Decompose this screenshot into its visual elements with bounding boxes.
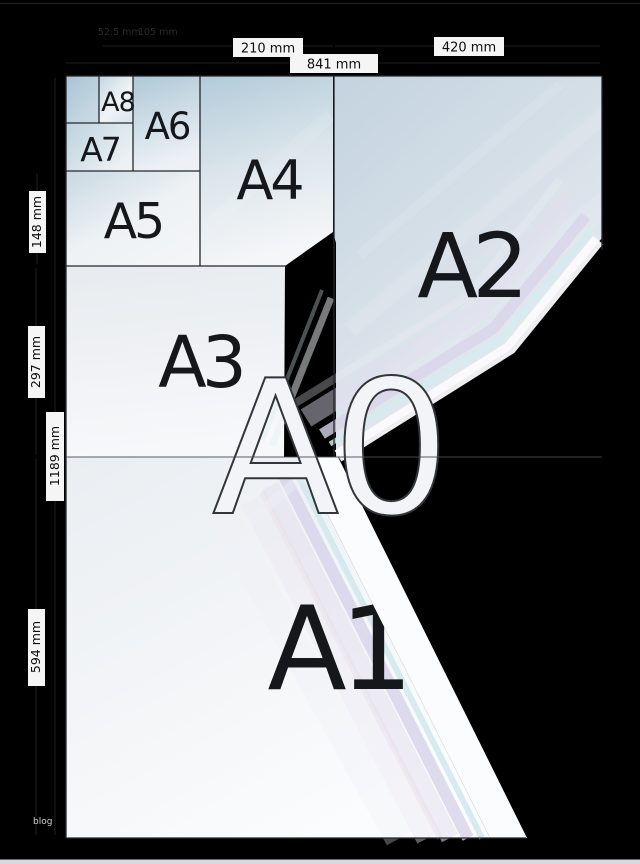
sheet-a4-label: A4 (236, 149, 302, 212)
bottom-strip (0, 860, 640, 864)
dim-297mm-label: 297 mm (28, 336, 43, 388)
dim-a8-width-faint-label: 52.5 mm (98, 27, 141, 38)
dim-a6-width-faint-label: 105 mm (138, 27, 178, 38)
sheet-a2-label: A2 (417, 214, 523, 318)
sheet-a6-label: A6 (145, 105, 190, 148)
dim-594mm-label: 594 mm (28, 621, 43, 673)
dim-841mm-label: 841 mm (307, 58, 361, 73)
faint-top-dimension-labels: 52.5 mm 105 mm (98, 27, 178, 38)
sheet-a5-label: A5 (104, 193, 163, 250)
diagram-canvas: A8 A6 A7 A5 A4 A3 A2 A1 A0 52.5 mm 105 m… (0, 0, 640, 864)
sheet-a8-label: A8 (101, 87, 135, 118)
sheet-a0-outline-label: A0 (212, 340, 444, 557)
sheet-a7-label: A7 (80, 130, 120, 169)
dim-148mm-label: 148 mm (29, 196, 44, 248)
paper-sizes-diagram: A8 A6 A7 A5 A4 A3 A2 A1 A0 52.5 mm 105 m… (0, 0, 640, 864)
blog-watermark: blog (33, 817, 52, 827)
dim-1189mm-label: 1189 mm (47, 426, 62, 486)
dim-420mm-label: 420 mm (442, 41, 496, 56)
dim-210mm-label: 210 mm (241, 42, 295, 57)
sheet-a9-cell (66, 76, 99, 123)
